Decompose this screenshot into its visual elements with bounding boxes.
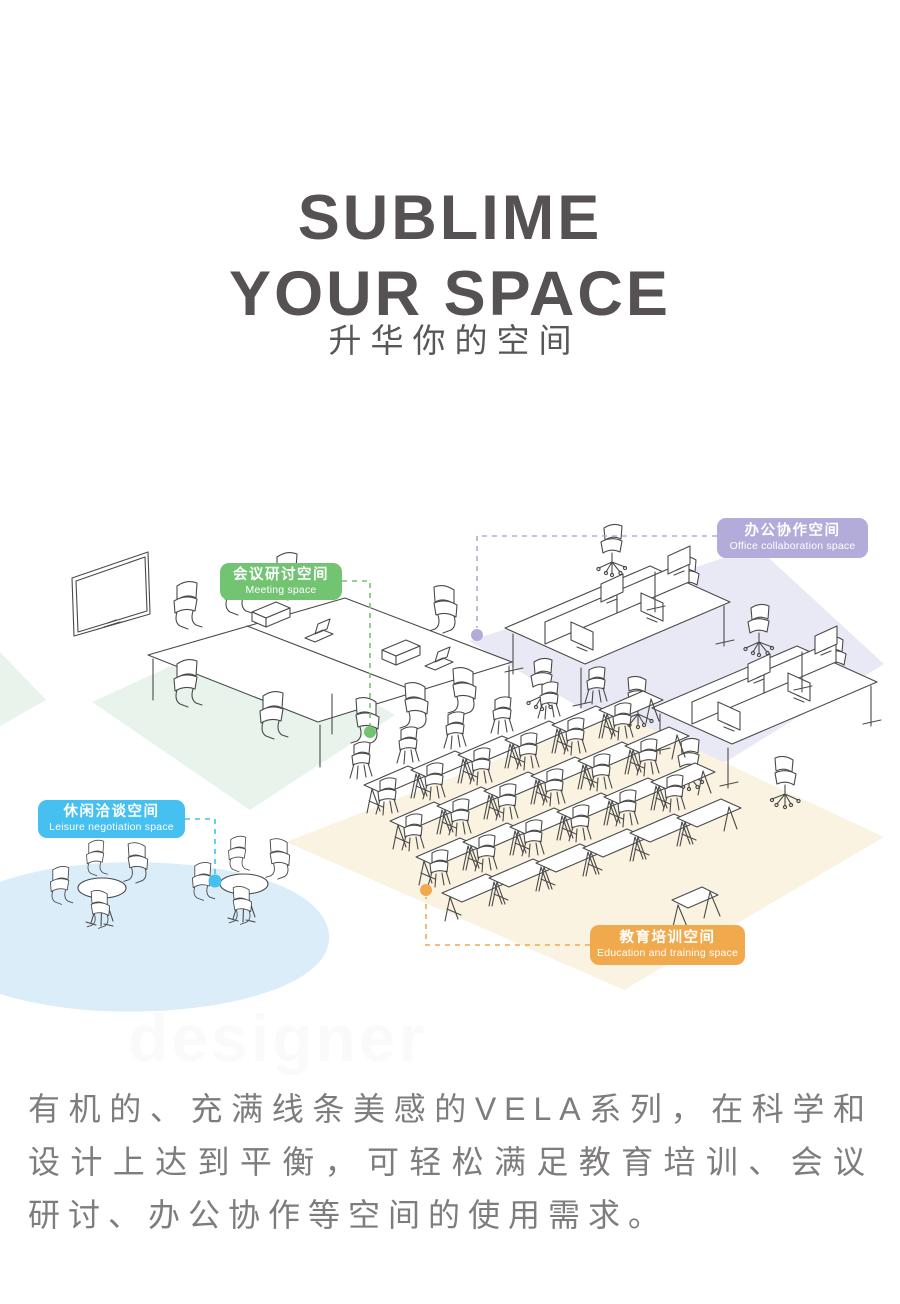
label-leisure-en: Leisure negotiation space xyxy=(49,821,174,833)
title-line-1: SUBLIME xyxy=(0,180,900,256)
label-office-en: Office collaboration space xyxy=(730,540,856,552)
leisure-connector-dot xyxy=(209,875,222,888)
watermark-text: designer xyxy=(128,1000,427,1076)
label-leisure-space: 休闲洽谈空间 Leisure negotiation space xyxy=(38,800,185,838)
page-title: SUBLIME YOUR SPACE xyxy=(0,180,900,332)
paragraph-line-3: 研讨、办公协作等空间的使用需求。 xyxy=(28,1189,873,1242)
training-connector-dot xyxy=(420,884,432,896)
description-paragraph: 有机的、充满线条美感的VELA系列，在科学和 设计上达到平衡，可轻松满足教育培训… xyxy=(28,1083,873,1242)
label-training-zh: 教育培训空间 xyxy=(620,930,716,947)
label-meeting-en: Meeting space xyxy=(246,584,317,596)
paragraph-line-2: 设计上达到平衡，可轻松满足教育培训、会议 xyxy=(28,1136,873,1189)
label-meeting-zh: 会议研讨空间 xyxy=(233,567,329,584)
isometric-space-illustration: 会议研讨空间 Meeting space 办公协作空间 Office colla… xyxy=(0,470,900,1030)
label-training-space: 教育培训空间 Education and training space xyxy=(590,925,745,965)
label-training-en: Education and training space xyxy=(597,947,738,959)
label-leisure-zh: 休闲洽谈空间 xyxy=(64,804,160,821)
product-detail-section: SUBLIME YOUR SPACE 升华你的空间 xyxy=(0,0,900,1304)
office-connector-dot xyxy=(471,629,483,641)
meeting-connector-dot xyxy=(364,726,376,738)
leisure-floor xyxy=(0,862,329,1011)
tv-screen-icon xyxy=(72,552,150,636)
label-office-zh: 办公协作空间 xyxy=(745,523,841,540)
paragraph-line-1: 有机的、充满线条美感的VELA系列，在科学和 xyxy=(28,1083,873,1136)
subtitle-zh: 升华你的空间 xyxy=(0,314,900,362)
label-meeting-space: 会议研讨空间 Meeting space xyxy=(220,563,342,600)
label-office-space: 办公协作空间 Office collaboration space xyxy=(717,518,868,558)
